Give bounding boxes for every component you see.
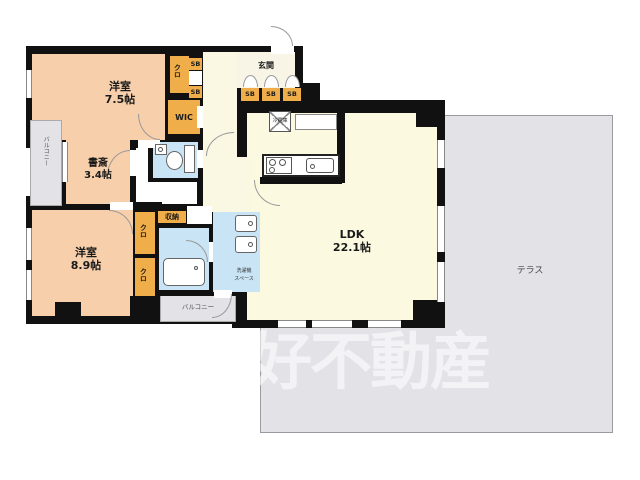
study-label: 書斎 3.4帖 [63, 158, 133, 182]
room-name: 洋室 [75, 246, 97, 259]
closet-label: クロ [173, 64, 181, 78]
sink-faucet [310, 164, 315, 169]
western-room-1-label: 洋室 7.5帖 [75, 80, 165, 106]
window [437, 206, 445, 252]
wic-label: WIC [168, 113, 200, 123]
closet-label: クロ [139, 268, 147, 282]
door-opening [209, 242, 213, 262]
shoebox-label: SB [189, 89, 202, 97]
hallway-lower [203, 157, 250, 212]
western-room-2-label: 洋室 8.9帖 [46, 246, 126, 272]
washbasin-faucet [248, 221, 253, 226]
washbasin-faucet [248, 242, 253, 247]
room-name: 書斎 [88, 158, 108, 169]
closet-label: クロ [139, 224, 147, 238]
window [26, 228, 32, 260]
bathtub [163, 258, 205, 286]
window [312, 320, 352, 328]
room-size: 7.5帖 [105, 93, 136, 106]
kitchen-cupboard [295, 114, 337, 130]
laundry-line1: 洗濯機 [236, 268, 251, 274]
window [26, 70, 32, 98]
room-size: 8.9帖 [71, 259, 102, 272]
stove-burner [269, 159, 276, 166]
window [437, 262, 445, 302]
entrance-label: 玄関 [237, 61, 295, 71]
room-name: 洋室 [109, 80, 131, 93]
balcony-bottom-label: バルコニー [160, 304, 236, 312]
wall [413, 300, 445, 328]
window [26, 270, 32, 300]
watermark-text: 好不動産 [250, 331, 490, 393]
door-opening [187, 206, 212, 224]
corner-sink-faucet [158, 147, 163, 152]
refrigerator-label: 冷蔵庫 [269, 118, 291, 124]
wall [55, 302, 81, 318]
laundry-line2: スペース [234, 276, 253, 282]
room-size: 22.1帖 [333, 241, 371, 254]
shoebox-label: SB [241, 91, 259, 99]
wall [416, 103, 443, 127]
room-size: 3.4帖 [84, 170, 112, 181]
bathtub-drain [194, 266, 198, 270]
terrace-label: テラス [495, 266, 565, 277]
door-opening [110, 202, 133, 210]
toilet-tank [184, 145, 195, 173]
shelf-opening [189, 71, 202, 85]
floor-plan: テラス 好不動産 [0, 0, 640, 480]
stove-burner [269, 167, 275, 173]
washbasin [235, 236, 257, 253]
ldk-label: LDK 22.1帖 [312, 228, 392, 254]
window [437, 140, 445, 168]
shoebox-label: SB [189, 61, 202, 69]
balcony-left-label: バルコニー [42, 136, 49, 166]
door-arc [271, 26, 293, 46]
shoebox-label: SB [262, 91, 280, 99]
storage-label: 収納 [158, 213, 186, 221]
washbasin [235, 215, 257, 232]
door-opening [197, 150, 203, 168]
wall [130, 296, 156, 322]
toilet-bowl [166, 151, 183, 170]
window [368, 320, 401, 328]
laundry-space-label: 洗濯機 スペース [228, 268, 260, 283]
window [278, 320, 306, 328]
stove-burner [279, 159, 286, 166]
room-name: LDK [340, 228, 365, 241]
shoebox-label: SB [283, 91, 301, 99]
door-opening [271, 46, 294, 54]
